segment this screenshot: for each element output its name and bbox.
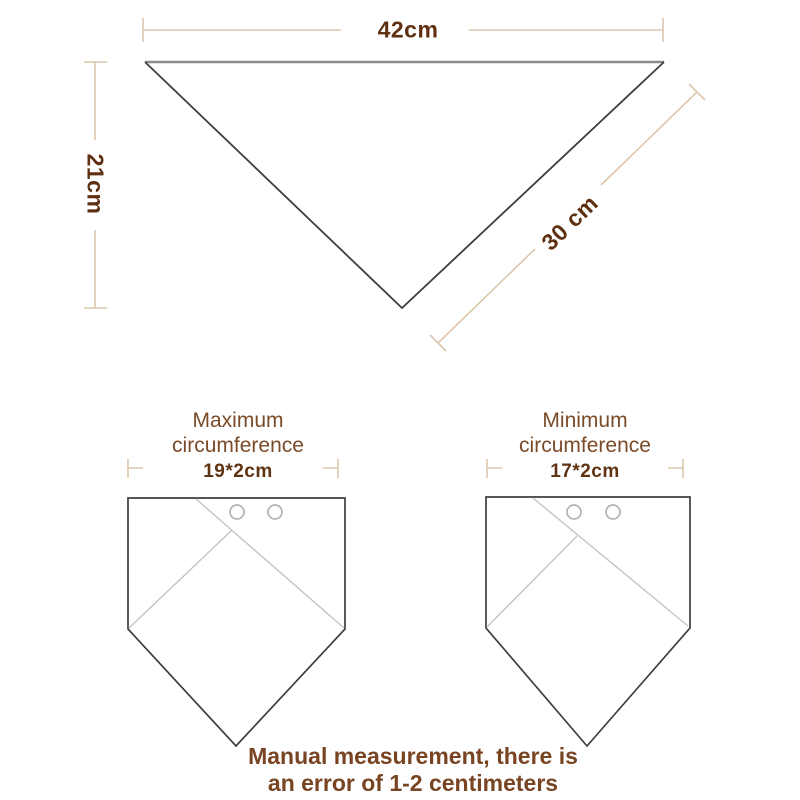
min-caption-line1: Minimum xyxy=(519,408,651,433)
min-bandana-dimension-left-tick xyxy=(487,459,502,478)
max-circumference-value: 19*2cm xyxy=(172,459,304,484)
min-bandana-snap-button-right xyxy=(606,505,620,519)
max-caption-line1: Maximum xyxy=(172,408,304,433)
max-bandana xyxy=(128,459,345,746)
max-bandana-snap-button-right xyxy=(268,505,282,519)
min-bandana-dimension-right-tick xyxy=(668,459,683,478)
measurement-diagram: 42cm 21cm 30 cm Maximum circumference 19… xyxy=(0,0,800,800)
min-bandana-fold-line-right xyxy=(533,498,688,626)
width-measure-label: 42cm xyxy=(378,17,439,44)
max-circumference-caption: Maximum circumference 19*2cm xyxy=(172,408,304,484)
min-bandana-fold-line-left xyxy=(487,536,577,627)
max-bandana-fold-line-left xyxy=(129,530,232,628)
diagram-lines xyxy=(0,0,800,800)
max-bandana-dimension-left-tick xyxy=(128,459,143,478)
min-caption-line2: circumference xyxy=(519,433,651,458)
measurement-note-line1: Manual measurement, there is xyxy=(248,743,578,770)
min-bandana xyxy=(486,459,690,746)
min-circumference-value: 17*2cm xyxy=(519,459,651,484)
measurement-note: Manual measurement, there is an error of… xyxy=(248,743,578,797)
height-measure-label: 21cm xyxy=(82,154,109,215)
min-bandana-outline xyxy=(486,497,690,746)
min-circumference-caption: Minimum circumference 17*2cm xyxy=(519,408,651,484)
max-bandana-dimension-right-tick xyxy=(323,459,338,478)
max-bandana-fold-line-right xyxy=(196,499,344,628)
side-dimension-line-top xyxy=(601,92,697,185)
max-caption-line2: circumference xyxy=(172,433,304,458)
min-bandana-snap-button-left xyxy=(567,505,581,519)
measurement-note-line2: an error of 1-2 centimeters xyxy=(248,770,578,797)
side-dimension-line-bottom xyxy=(438,249,535,343)
max-bandana-snap-button-left xyxy=(230,505,244,519)
scarf-triangle xyxy=(145,62,664,308)
scarf-triangle-side-edges xyxy=(145,62,664,308)
